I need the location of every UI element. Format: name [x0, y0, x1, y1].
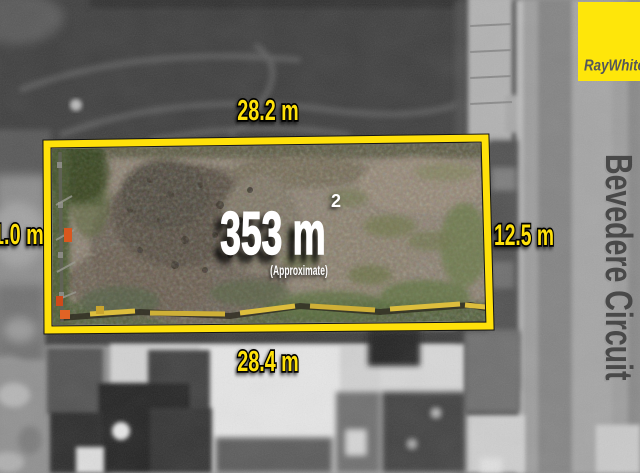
- svg-text:28.4 m: 28.4 m: [237, 346, 299, 378]
- svg-text:RayWhite: RayWhite: [584, 58, 640, 75]
- svg-text:Bevedere Circuit: Bevedere Circuit: [597, 154, 639, 381]
- svg-text:353 m: 353 m: [220, 200, 325, 267]
- svg-text:2: 2: [331, 191, 341, 211]
- svg-text:21.0 m: 21.0 m: [0, 219, 44, 251]
- svg-text:12.5 m: 12.5 m: [494, 219, 554, 252]
- svg-text:(Approximate): (Approximate): [270, 264, 328, 278]
- svg-text:28.2 m: 28.2 m: [237, 95, 299, 127]
